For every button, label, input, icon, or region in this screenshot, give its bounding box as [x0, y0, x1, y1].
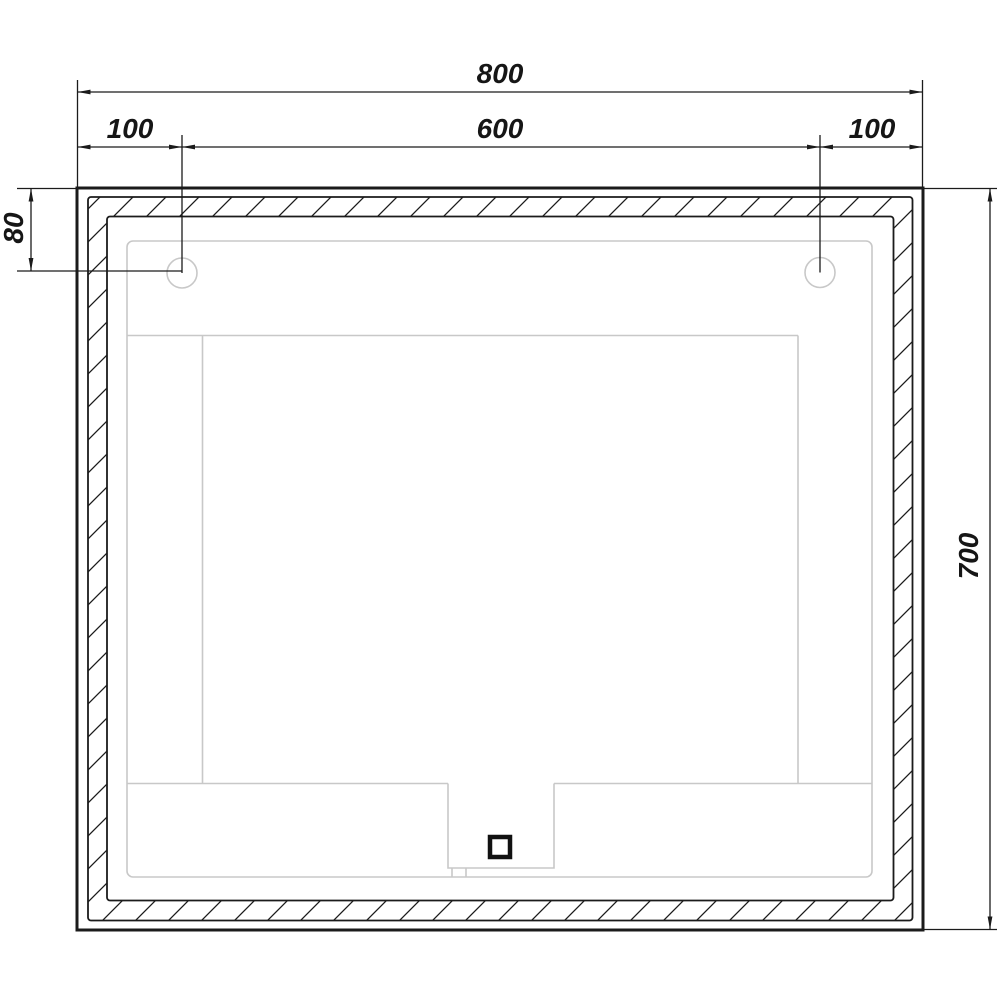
mirror-outer-edge — [77, 188, 923, 930]
arrowhead — [988, 917, 993, 930]
arrowhead — [988, 189, 993, 202]
dim-label-hole-spacing: 600 — [477, 113, 524, 144]
arrowhead — [910, 145, 923, 150]
touch-sensor — [490, 837, 510, 857]
arrowhead — [910, 90, 923, 95]
arrowhead — [820, 145, 833, 150]
arrowhead — [78, 90, 91, 95]
arrowhead — [78, 145, 91, 150]
dimension-overall-height: 700 — [924, 189, 997, 930]
dim-label-overall-height: 700 — [953, 532, 984, 579]
dim-label-hole-top-offset: 80 — [0, 212, 29, 244]
dim-label-overall-width: 800 — [477, 58, 524, 89]
arrowhead — [807, 145, 820, 150]
arrowhead — [29, 189, 34, 202]
arrowhead — [182, 145, 195, 150]
mirror-outline — [77, 188, 923, 930]
dim-label-right-hole-offset: 100 — [849, 113, 896, 144]
arrowhead — [29, 258, 34, 271]
arrowhead — [169, 145, 182, 150]
drawing-canvas: 800 100 600 100 80 700 — [0, 0, 1000, 1000]
drawing-page: 800 100 600 100 80 700 — [0, 0, 1000, 1000]
dim-label-left-hole-offset: 100 — [107, 113, 154, 144]
